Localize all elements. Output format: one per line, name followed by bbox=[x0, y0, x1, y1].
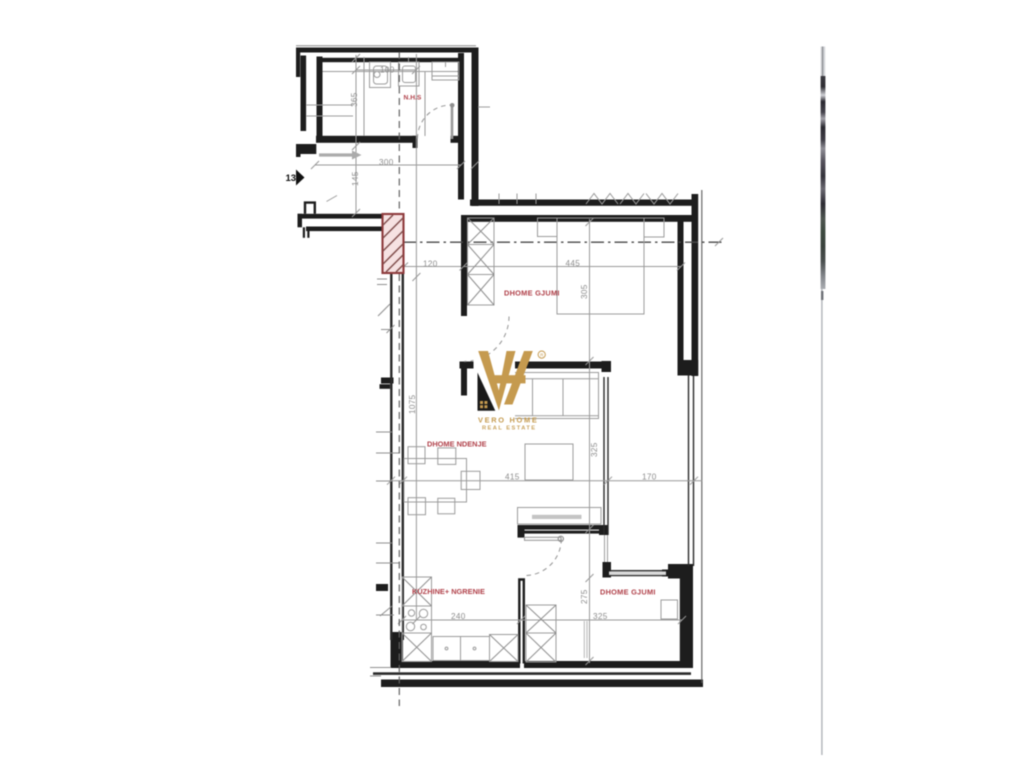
svg-text:N.H.S: N.H.S bbox=[404, 95, 422, 102]
svg-text:1075: 1075 bbox=[408, 394, 417, 414]
svg-text:325: 325 bbox=[593, 612, 608, 621]
svg-text:275: 275 bbox=[580, 589, 589, 604]
svg-text:145: 145 bbox=[351, 171, 360, 186]
svg-text:120: 120 bbox=[423, 260, 438, 269]
svg-text:365: 365 bbox=[350, 92, 359, 107]
svg-text:100: 100 bbox=[380, 66, 395, 75]
svg-text:VERO HOME: VERO HOME bbox=[478, 415, 538, 424]
svg-text:13: 13 bbox=[286, 173, 297, 184]
svg-text:KUZHINE+ NGRENIE: KUZHINE+ NGRENIE bbox=[412, 587, 485, 596]
svg-text:240: 240 bbox=[451, 612, 466, 621]
svg-text:DHOME NDENJE: DHOME NDENJE bbox=[427, 440, 487, 449]
svg-text:325: 325 bbox=[590, 442, 599, 457]
svg-text:300: 300 bbox=[379, 158, 394, 167]
svg-text:DHOME GJUMI: DHOME GJUMI bbox=[504, 289, 560, 298]
svg-text:DHOME GJUMI: DHOME GJUMI bbox=[600, 588, 656, 597]
svg-text:415: 415 bbox=[505, 472, 520, 481]
svg-text:REAL ESTATE: REAL ESTATE bbox=[482, 426, 537, 432]
svg-text:170: 170 bbox=[642, 472, 657, 481]
svg-text:R: R bbox=[540, 353, 543, 358]
svg-text:305: 305 bbox=[580, 284, 589, 299]
svg-text:445: 445 bbox=[566, 259, 581, 268]
